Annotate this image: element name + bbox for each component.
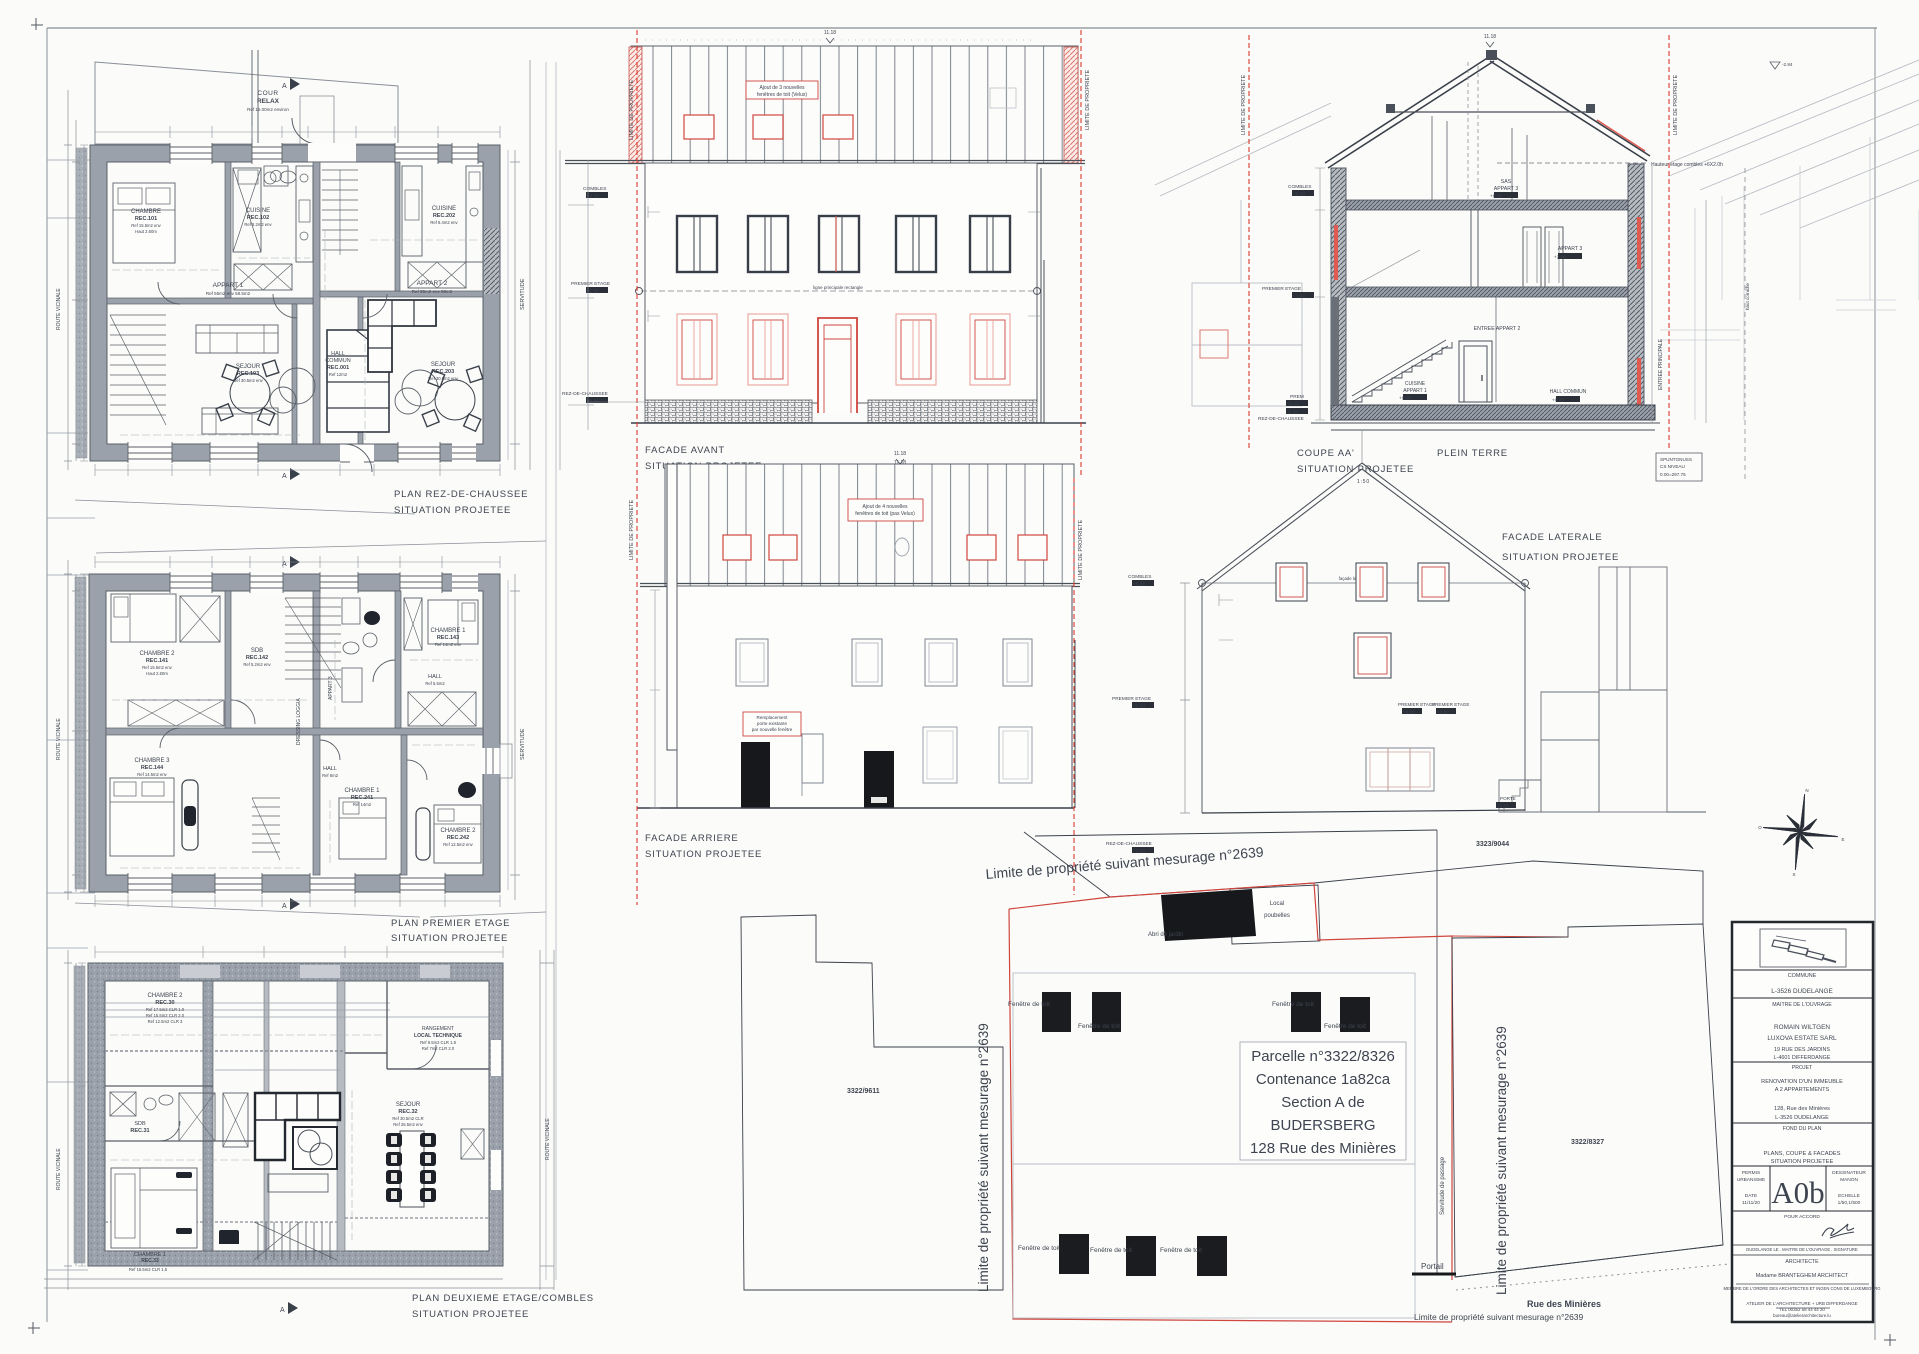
svg-text:+0.00: +0.00 <box>587 399 599 405</box>
svg-text:ECHELLE: ECHELLE <box>1838 1193 1860 1199</box>
svg-text:PROJET: PROJET <box>1792 1065 1813 1071</box>
svg-text:A: A <box>282 83 287 90</box>
svg-text:PLEIN TERRE: PLEIN TERRE <box>1437 448 1508 459</box>
svg-text:RANGEMENT: RANGEMENT <box>422 1026 454 1032</box>
svg-text:SERVITUDE: SERVITUDE <box>520 278 526 310</box>
svg-text:Ref 30.5m2 env: Ref 30.5m2 env <box>233 378 263 383</box>
svg-text:PREMIER ETAGE: PREMIER ETAGE <box>1112 696 1151 702</box>
svg-text:Ajout de 4 nouvelles: Ajout de 4 nouvelles <box>862 504 908 510</box>
svg-text:1/50,1/500: 1/50,1/500 <box>1838 1200 1861 1206</box>
svg-text:Remplacement: Remplacement <box>757 715 789 720</box>
svg-text:COMBLES: COMBLES <box>583 186 606 192</box>
svg-text:REC.144: REC.144 <box>141 765 164 771</box>
svg-text:11.18: 11.18 <box>894 451 906 457</box>
svg-text:LIMITE DE PROPRIETE: LIMITE DE PROPRIETE <box>629 79 635 140</box>
svg-text:128, Rue des Minières: 128, Rue des Minières <box>1774 1106 1830 1112</box>
svg-text:Section A de: Section A de <box>1281 1094 1364 1111</box>
svg-text:SITUATION PROJETEE: SITUATION PROJETEE <box>1502 552 1619 563</box>
svg-text:A: A <box>282 903 287 910</box>
svg-text:LIMITE DE PROPRIETE: LIMITE DE PROPRIETE <box>1078 519 1084 580</box>
svg-text:RELAX: RELAX <box>257 98 280 105</box>
svg-text:Parcelle n°3322/8326: Parcelle n°3322/8326 <box>1251 1048 1395 1065</box>
svg-text:par nouvelle fenêtre: par nouvelle fenêtre <box>752 727 793 732</box>
svg-text:fenêtres de toit (Velux): fenêtres de toit (Velux) <box>757 92 807 98</box>
svg-text:+2.60: +2.60 <box>1133 704 1145 710</box>
svg-text:Fenêtre de toit: Fenêtre de toit <box>1272 1001 1314 1008</box>
svg-text:+0.00: +0.00 <box>1399 396 1411 402</box>
svg-text:LIMITE DE PROPRIETE: LIMITE DE PROPRIETE <box>629 499 635 560</box>
svg-text:Ref 55m2 env 58m2: Ref 55m2 env 58m2 <box>412 289 453 294</box>
svg-text:PERMIS: PERMIS <box>1742 1170 1760 1176</box>
svg-text:ROMAIN WILTGEN: ROMAIN WILTGEN <box>1774 1024 1830 1031</box>
svg-text:MANON: MANON <box>1840 1177 1858 1183</box>
svg-text:128 Rue des Minières: 128 Rue des Minières <box>1250 1140 1396 1157</box>
svg-text:A: A <box>280 1307 285 1314</box>
svg-text:Fenêtre de toit: Fenêtre de toit <box>1090 1247 1132 1254</box>
svg-text:REC.101: REC.101 <box>135 216 157 222</box>
svg-text:SITUATION PROJETEE: SITUATION PROJETEE <box>645 849 762 860</box>
svg-text:Ref 17.5m2 CLR 1.0: Ref 17.5m2 CLR 1.0 <box>146 1007 185 1012</box>
svg-text:ENTREE PRINCIPALE: ENTREE PRINCIPALE <box>1658 338 1664 390</box>
svg-text:Ref 14m2 env: Ref 14m2 env <box>435 642 462 647</box>
svg-text:0.00=297.75: 0.00=297.75 <box>1660 472 1686 477</box>
svg-text:CS NIVEAU: CS NIVEAU <box>1660 464 1685 469</box>
svg-text:FOND DU PLAN: FOND DU PLAN <box>1783 1126 1822 1132</box>
svg-text:Ref 15.5m2 CLR 1.5: Ref 15.5m2 CLR 1.5 <box>129 1267 168 1272</box>
svg-text:Ref 9.5m2 CLR 1.8: Ref 9.5m2 CLR 1.8 <box>420 1040 457 1045</box>
svg-text:Limite de propriété suivant me: Limite de propriété suivant mesurage n°2… <box>1414 1312 1584 1322</box>
svg-text:SDB: SDB <box>251 648 263 654</box>
svg-text:COMBLES: COMBLES <box>1288 184 1311 190</box>
svg-text:REZ-DE-CHAUSSEE: REZ-DE-CHAUSSEE <box>1106 841 1152 847</box>
svg-text:REC.103: REC.103 <box>237 371 259 377</box>
svg-text:ROUTE VICINALE: ROUTE VICINALE <box>56 718 62 760</box>
svg-text:+2.60: +2.60 <box>587 289 599 295</box>
svg-text:CUISINE: CUISINE <box>432 206 456 212</box>
svg-text:Rue des Minières: Rue des Minières <box>1527 1299 1601 1309</box>
svg-text:Ref 15.5m2 CLR 2.0: Ref 15.5m2 CLR 2.0 <box>146 1013 185 1018</box>
svg-text:CUISINE: CUISINE <box>1405 381 1426 387</box>
svg-text:O: O <box>1758 825 1762 830</box>
svg-text:LIMITE DE PROPRIETE: LIMITE DE PROPRIETE <box>1241 74 1247 135</box>
svg-text:19 RUE DES JARDINS: 19 RUE DES JARDINS <box>1774 1047 1830 1053</box>
svg-text:Ref 12.5m2 CLR 3: Ref 12.5m2 CLR 3 <box>148 1019 183 1024</box>
svg-text:ENTREE APPART 2: ENTREE APPART 2 <box>1474 326 1521 332</box>
svg-text:PORTE: PORTE <box>1500 796 1516 801</box>
svg-text:PREMIER ETAGE: PREMIER ETAGE <box>1262 286 1301 292</box>
svg-text:SITUATION PROJETEE: SITUATION PROJETEE <box>391 933 508 944</box>
svg-text:ATELIER DE L'ARCHITECTURE + UR: ATELIER DE L'ARCHITECTURE + URB DIFFERDA… <box>1746 1301 1857 1306</box>
svg-text:+2.60: +2.60 <box>1403 710 1415 715</box>
svg-text:REC.001: REC.001 <box>327 365 349 371</box>
svg-text:ARCHITECTE: ARCHITECTE <box>1785 1259 1819 1265</box>
svg-text:REC.203: REC.203 <box>432 369 454 375</box>
svg-text:HALL: HALL <box>428 674 442 680</box>
svg-text:Ref 5.5m2: Ref 5.5m2 <box>425 681 445 686</box>
svg-text:APPART 1: APPART 1 <box>1403 388 1427 394</box>
svg-text:S: S <box>1792 872 1795 877</box>
svg-text:SITUATION PROJETEE: SITUATION PROJETEE <box>1771 1159 1834 1165</box>
svg-text:MEMBRE DE L'ORDRE DES ARCHITEC: MEMBRE DE L'ORDRE DES ARCHITECTES ET ING… <box>1723 1286 1880 1291</box>
svg-text:11.18: 11.18 <box>1484 34 1496 40</box>
svg-text:ROUTE VICINALE: ROUTE VICINALE <box>56 288 62 330</box>
svg-text:REC.30: REC.30 <box>155 1000 174 1006</box>
svg-text:fenêtres de toit (pas Velux): fenêtres de toit (pas Velux) <box>855 511 915 517</box>
svg-text:Haut 2.60m: Haut 2.60m <box>135 229 157 234</box>
svg-text:Ref 8.4m2 env: Ref 8.4m2 env <box>430 220 458 225</box>
svg-text:DRESSING LOGGIA: DRESSING LOGGIA <box>296 698 302 745</box>
svg-text:SDB: SDB <box>134 1121 146 1127</box>
svg-text:POUR ACCORD: POUR ACCORD <box>1784 1214 1820 1220</box>
svg-text:PREMIER ETAGE: PREMIER ETAGE <box>1398 702 1435 707</box>
svg-text:+0.00: +0.00 <box>1287 402 1299 408</box>
svg-text:E: E <box>1841 837 1844 842</box>
svg-text:APPART 1: APPART 1 <box>213 282 244 289</box>
svg-text:DUDELANGE LE . MAITRE DE L'OUV: DUDELANGE LE . MAITRE DE L'OUVRAGE . SIG… <box>1746 1247 1858 1252</box>
svg-text:FACADE AVANT: FACADE AVANT <box>645 445 725 456</box>
svg-text:SAS: SAS <box>1501 179 1512 185</box>
svg-text:CHAMBRE 1: CHAMBRE 1 <box>344 788 380 794</box>
svg-text:Ref 15.5m2 env: Ref 15.5m2 env <box>142 665 172 670</box>
svg-text:11.18: 11.18 <box>824 30 836 36</box>
svg-text:3322/8327: 3322/8327 <box>1571 1139 1604 1146</box>
svg-text:L-4601 DIFFERDANGE: L-4601 DIFFERDANGE <box>1774 1055 1831 1061</box>
svg-text:A: A <box>282 473 287 480</box>
svg-text:Servitude de passage: Servitude de passage <box>1440 1156 1446 1215</box>
svg-text:DESSINATEUR: DESSINATEUR <box>1832 1170 1866 1176</box>
svg-text:LOCAL TECHNIQUE: LOCAL TECHNIQUE <box>414 1033 463 1039</box>
svg-text:3322/9611: 3322/9611 <box>847 1088 880 1095</box>
svg-text:SEJOUR: SEJOUR <box>396 1102 421 1108</box>
svg-text:poubelles: poubelles <box>1264 913 1290 919</box>
svg-text:COUPE AA': COUPE AA' <box>1297 448 1355 459</box>
svg-text:PLAN PREMIER ETAGE: PLAN PREMIER ETAGE <box>391 918 510 929</box>
svg-text:CHAMBRE: CHAMBRE <box>131 209 161 215</box>
svg-text:PREMIER ETAGE: PREMIER ETAGE <box>1432 702 1469 707</box>
svg-text:LIMITE DE PROPRIETE: LIMITE DE PROPRIETE <box>1673 74 1679 135</box>
svg-text:HALL: HALL <box>331 351 345 357</box>
svg-text:REZ-DE-CHAUSSEE: REZ-DE-CHAUSSEE <box>1258 416 1304 422</box>
svg-text:CHAMBRE 3: CHAMBRE 3 <box>134 758 170 764</box>
svg-text:porte existante: porte existante <box>757 721 788 726</box>
svg-text:DATE: DATE <box>1745 1193 1757 1199</box>
svg-text:LIMITE DE PROPRIETE: LIMITE DE PROPRIETE <box>1085 69 1091 130</box>
svg-text:Ref 12m2: Ref 12m2 <box>329 372 348 377</box>
svg-text:Fenêtre de toit: Fenêtre de toit <box>1018 1245 1060 1252</box>
svg-text:L-3526 DUDELANGE: L-3526 DUDELANGE <box>1775 1115 1829 1121</box>
svg-text:+6.30: +6.30 <box>1133 582 1145 588</box>
svg-text:+6.30: +6.30 <box>587 194 599 200</box>
svg-text:bureau@atelierarchitecture.lu: bureau@atelierarchitecture.lu <box>1773 1313 1831 1318</box>
svg-text:LUXOVA ESTATE SARL: LUXOVA ESTATE SARL <box>1767 1035 1837 1042</box>
svg-text:URBANISME: URBANISME <box>1737 1177 1766 1183</box>
svg-text:COUR: COUR <box>257 90 278 97</box>
svg-text:COMMUN: COMMUN <box>325 358 350 364</box>
svg-text:COMBLES: COMBLES <box>1128 574 1151 580</box>
svg-text:Ref 5.2m2 env: Ref 5.2m2 env <box>243 662 271 667</box>
svg-text:Hauteur étage combles +6X2.0h: Hauteur étage combles +6X2.0h <box>1651 162 1723 168</box>
svg-text:PREM: PREM <box>1290 394 1304 400</box>
svg-text:MAITRE DE L'OUVRAGE: MAITRE DE L'OUVRAGE <box>1772 1002 1832 1008</box>
svg-text:+6.30: +6.30 <box>1490 194 1502 200</box>
svg-text:REC.241: REC.241 <box>351 795 373 801</box>
svg-text:APPART 3: APPART 3 <box>1558 246 1583 252</box>
svg-text:Ref 12.5m2 env: Ref 12.5m2 env <box>443 842 473 847</box>
svg-text:CHAMBRE 1: CHAMBRE 1 <box>430 628 466 634</box>
svg-text:A0b: A0b <box>1771 1175 1824 1210</box>
svg-text:+2.60: +2.60 <box>1437 710 1449 715</box>
svg-text:Portail: Portail <box>1421 1262 1444 1271</box>
svg-text:Ref 14.5m2 env: Ref 14.5m2 env <box>137 772 167 777</box>
svg-text:Ref 30.5m2 env: Ref 30.5m2 env <box>428 376 458 381</box>
svg-text:APPART 3: APPART 3 <box>1494 186 1519 192</box>
svg-text:Ref 15.5m2 env: Ref 15.5m2 env <box>131 223 161 228</box>
svg-text:11/11/20: 11/11/20 <box>1742 1200 1760 1206</box>
svg-text:Ref 7m2 CLR 2.0: Ref 7m2 CLR 2.0 <box>422 1046 455 1051</box>
svg-text:Ref 30.5m2 CLR: Ref 30.5m2 CLR <box>392 1116 423 1121</box>
svg-text:Limite de propriété suivant me: Limite de propriété suivant mesurage n°2… <box>976 1023 991 1292</box>
svg-text:BUDERSBERG: BUDERSBERG <box>1270 1117 1375 1134</box>
svg-text:REC.142: REC.142 <box>246 655 268 661</box>
svg-text:ligne principale rectangle: ligne principale rectangle <box>813 285 863 290</box>
svg-text:Contenance 1a82ca: Contenance 1a82ca <box>1256 1071 1391 1088</box>
svg-text:+0.30: +0.30 <box>1497 804 1509 809</box>
svg-text:L-3526 DUDELANGE: L-3526 DUDELANGE <box>1771 988 1832 995</box>
svg-text:haut corniche: haut corniche <box>1745 282 1750 310</box>
svg-text:CUISINE: CUISINE <box>246 208 270 214</box>
svg-text:SITUATION PROJETEE: SITUATION PROJETEE <box>394 505 511 516</box>
svg-text:Local: Local <box>1270 901 1284 907</box>
svg-text:REC.31: REC.31 <box>130 1128 149 1134</box>
svg-text:-2.84: -2.84 <box>1782 62 1793 67</box>
svg-text:CHAMBRE 2: CHAMBRE 2 <box>147 993 183 999</box>
svg-text:PREMIER ETAGE: PREMIER ETAGE <box>571 281 610 287</box>
svg-text:APPART 3: APPART 3 <box>328 676 334 700</box>
svg-text:SITUATION PROJETEE: SITUATION PROJETEE <box>412 1309 529 1320</box>
svg-text:SEJOUR: SEJOUR <box>236 364 261 370</box>
svg-text:Ref 26.5m2 env: Ref 26.5m2 env <box>393 1122 423 1127</box>
svg-text:CHAMBRE 2: CHAMBRE 2 <box>440 828 476 834</box>
svg-text:-0.15: -0.15 <box>1287 410 1298 416</box>
svg-text:REC.143: REC.143 <box>437 635 459 641</box>
svg-text:HALL: HALL <box>323 766 337 772</box>
svg-text:Fenêtre de toit: Fenêtre de toit <box>1008 1001 1050 1008</box>
svg-text:REC.32: REC.32 <box>398 1109 417 1115</box>
svg-text:FACADE ARRIERE: FACADE ARRIERE <box>645 833 739 844</box>
svg-text:Ref 14m2: Ref 14m2 <box>353 802 372 807</box>
svg-text:1:50: 1:50 <box>1357 479 1370 485</box>
svg-text:+2.60: +2.60 <box>1293 294 1305 300</box>
svg-text:CHAMBRE 2: CHAMBRE 2 <box>139 651 175 657</box>
svg-text:SERVITUDE: SERVITUDE <box>520 728 526 760</box>
svg-text:Ref 15.00m2 environ: Ref 15.00m2 environ <box>247 107 289 112</box>
svg-text:3323/9044: 3323/9044 <box>1476 841 1509 848</box>
svg-text:REC.141: REC.141 <box>146 658 168 664</box>
svg-text:HALL COMMUN: HALL COMMUN <box>1550 389 1587 395</box>
svg-text:Ref 8.2m2 env: Ref 8.2m2 env <box>244 222 272 227</box>
svg-text:Fenêtre de toit: Fenêtre de toit <box>1160 1247 1202 1254</box>
svg-text:Abri de jardin: Abri de jardin <box>1148 932 1183 938</box>
svg-text:Ajout de 3 nouvelles: Ajout de 3 nouvelles <box>759 85 805 91</box>
svg-text:PLAN REZ-DE-CHAUSSEE: PLAN REZ-DE-CHAUSSEE <box>394 489 528 500</box>
svg-text:PLANS, COUPE & FACADES: PLANS, COUPE & FACADES <box>1764 1151 1841 1157</box>
svg-text:COMMUNE: COMMUNE <box>1788 973 1817 979</box>
svg-text:+2.60: +2.60 <box>1554 255 1566 261</box>
svg-text:N: N <box>1805 788 1808 793</box>
svg-text:RENOVATION D'UN IMMEUBLE: RENOVATION D'UN IMMEUBLE <box>1761 1079 1843 1085</box>
svg-text:Fenêtre de toit: Fenêtre de toit <box>1324 1023 1366 1030</box>
svg-text:REC.102: REC.102 <box>247 215 269 221</box>
svg-text:SEJOUR: SEJOUR <box>431 362 456 368</box>
svg-text:SPUNTGNUSS: SPUNTGNUSS <box>1660 457 1692 462</box>
svg-text:+6.30: +6.30 <box>1293 192 1305 198</box>
svg-text:Ref 55m2 env 58.5m2: Ref 55m2 env 58.5m2 <box>206 291 251 296</box>
svg-text:FACADE LATERALE: FACADE LATERALE <box>1502 532 1603 543</box>
svg-text:Haut 2.60m: Haut 2.60m <box>146 671 168 676</box>
svg-text:A 2 APPARTEMENTS: A 2 APPARTEMENTS <box>1775 1087 1830 1093</box>
svg-text:Fenêtre de toit: Fenêtre de toit <box>1078 1023 1120 1030</box>
svg-text:Madame BRANTEGHEM ARCHITECT: Madame BRANTEGHEM ARCHITECT <box>1756 1273 1849 1279</box>
svg-text:PLAN DEUXIEME ETAGE/COMBLES: PLAN DEUXIEME ETAGE/COMBLES <box>412 1293 594 1304</box>
svg-text:Limite de propriété suivant me: Limite de propriété suivant mesurage n°2… <box>1494 1026 1509 1295</box>
svg-text:Ref 6m2: Ref 6m2 <box>322 773 338 778</box>
svg-text:APPART 2: APPART 2 <box>417 280 448 287</box>
svg-text:+0.00: +0.00 <box>1552 398 1564 404</box>
svg-text:REC.33: REC.33 <box>141 1258 159 1264</box>
svg-text:REC.242: REC.242 <box>447 835 469 841</box>
svg-text:REZ-DE-CHAUSSEE: REZ-DE-CHAUSSEE <box>562 391 608 397</box>
svg-text:REC.202: REC.202 <box>433 213 455 219</box>
svg-text:ROUTE VICINALE: ROUTE VICINALE <box>56 1148 62 1190</box>
